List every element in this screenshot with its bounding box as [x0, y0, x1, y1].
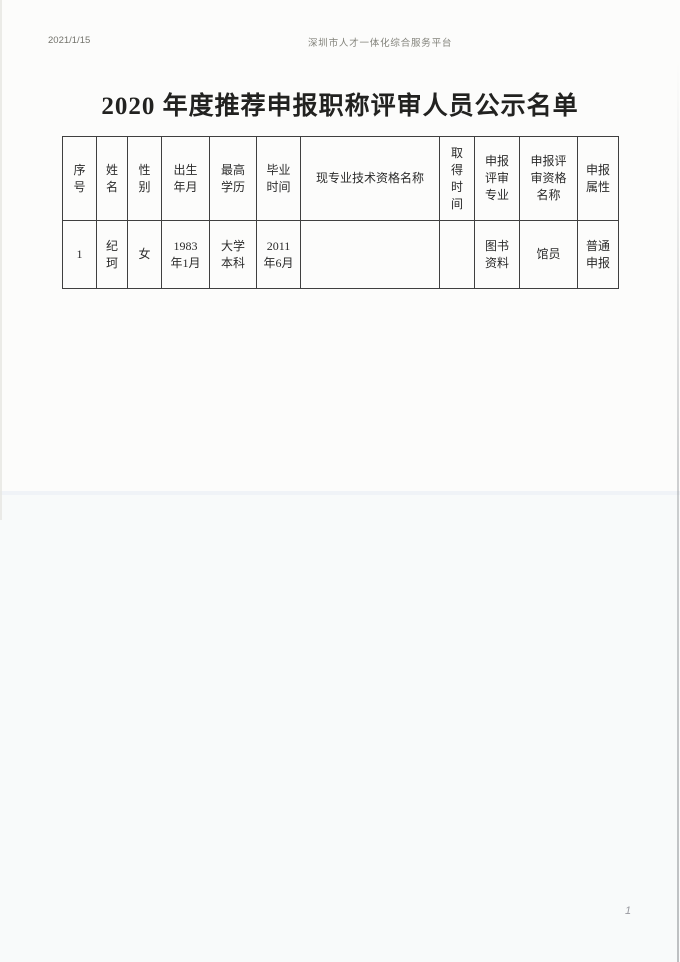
site-name: 深圳市人才一体化综合服务平台 [308, 35, 452, 49]
table-row: 1 纪 珂 女 1983 年1月 大学 本科 2011 年6月 图书 资料 馆员… [63, 221, 619, 289]
cell-graduation: 2011 年6月 [257, 221, 301, 289]
cell-birth: 1983 年1月 [162, 221, 210, 289]
scan-artifact-right-edge [677, 60, 679, 962]
header-cell-seq: 序 号 [63, 137, 97, 221]
cell-obtain-time [440, 221, 475, 289]
roster-table: 序 号 姓 名 性 别 出生 年月 最高 学历 毕业 时间 现专业技术资格名称 … [62, 136, 619, 289]
scan-artifact-left-edge [0, 0, 2, 520]
header-cell-current-qualification: 现专业技术资格名称 [301, 137, 440, 221]
cell-review-qualification: 馆员 [520, 221, 578, 289]
header-cell-gender: 性 别 [128, 137, 162, 221]
header-cell-declare-type: 申报 属性 [578, 137, 619, 221]
cell-seq: 1 [63, 221, 97, 289]
header-cell-review-major: 申报 评审 专业 [475, 137, 520, 221]
cell-declare-type: 普通 申报 [578, 221, 619, 289]
page-number: 1 [625, 905, 631, 917]
header-cell-review-qualification: 申报评 审资格 名称 [520, 137, 578, 221]
print-date: 2021/1/15 [48, 35, 90, 46]
cell-gender: 女 [128, 221, 162, 289]
table-header-row: 序 号 姓 名 性 别 出生 年月 最高 学历 毕业 时间 现专业技术资格名称 … [63, 137, 619, 221]
header-cell-graduation: 毕业 时间 [257, 137, 301, 221]
document-title: 2020 年度推荐申报职称评审人员公示名单 [0, 86, 680, 122]
cell-education: 大学 本科 [210, 221, 257, 289]
header-cell-education: 最高 学历 [210, 137, 257, 221]
cell-review-major: 图书 资料 [475, 221, 520, 289]
cell-name: 纪 珂 [97, 221, 128, 289]
cell-current-qualification [301, 221, 440, 289]
header-cell-birth: 出生 年月 [162, 137, 210, 221]
header-cell-obtain-time: 取 得 时 间 [440, 137, 475, 221]
scan-artifact-lower-tint [0, 495, 680, 962]
scanned-document-page: 2021/1/15 深圳市人才一体化综合服务平台 2020 年度推荐申报职称评审… [0, 0, 680, 962]
header-cell-name: 姓 名 [97, 137, 128, 221]
